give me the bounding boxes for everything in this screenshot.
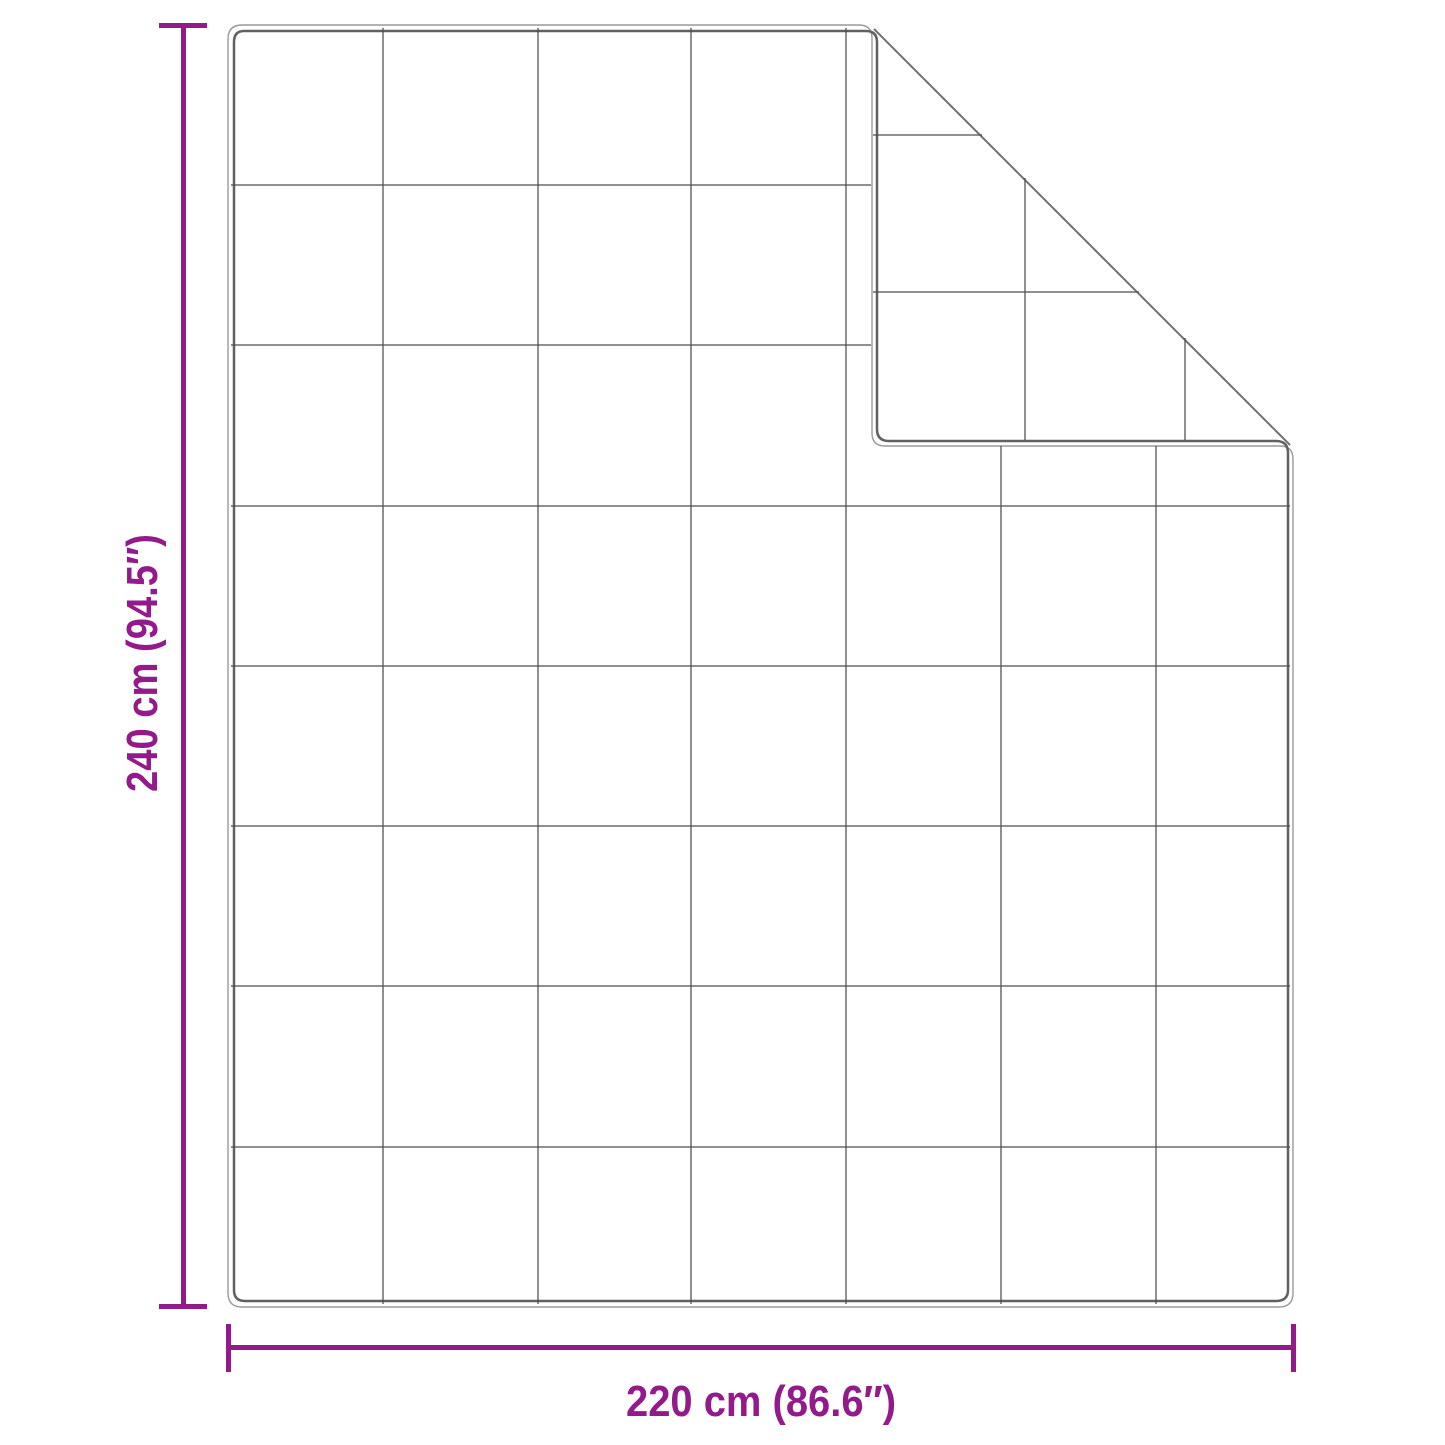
width-dimension-line bbox=[228, 1345, 1294, 1350]
height-dimension-label: 240 cm (94.5″) bbox=[118, 534, 167, 792]
height-dimension-line bbox=[181, 25, 186, 1307]
blanket-dimension-diagram: 240 cm (94.5″) 220 cm (86.6″) bbox=[0, 0, 1445, 1445]
height-dimension-cap-bottom bbox=[159, 1304, 207, 1309]
diagram-canvas: 240 cm (94.5″) 220 cm (86.6″) bbox=[0, 0, 1445, 1445]
width-dimension-cap-right bbox=[1291, 1324, 1296, 1372]
height-dimension-cap-top bbox=[159, 23, 207, 28]
height-dimension: 240 cm (94.5″) bbox=[118, 23, 207, 1309]
fold-flap-grid bbox=[873, 135, 1185, 440]
width-dimension-label: 220 cm (86.6″) bbox=[626, 1377, 896, 1426]
width-dimension: 220 cm (86.6″) bbox=[226, 1324, 1296, 1426]
width-dimension-cap-left bbox=[226, 1324, 231, 1372]
fold-crease bbox=[874, 29, 1290, 445]
